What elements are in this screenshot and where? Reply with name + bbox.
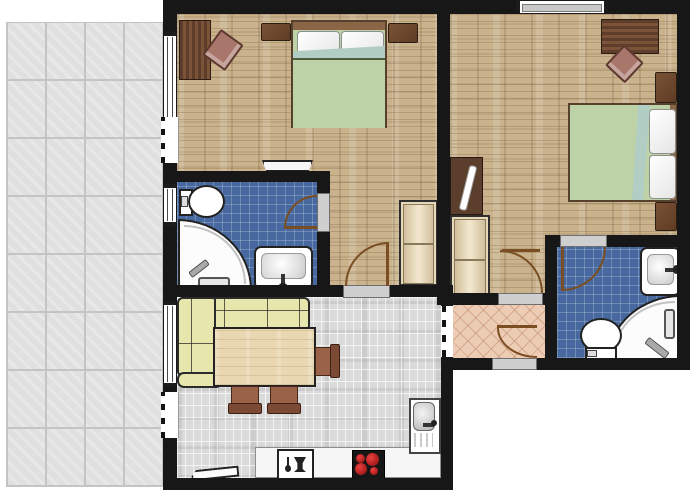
bathroom-1-door-sill [317,193,330,232]
bedroom-1-nightstand-left [261,23,291,41]
sofa-left-section [177,297,216,375]
wall-bathroom-2-left [545,235,557,370]
toilet-flush-button [587,350,597,357]
cooktop [352,450,385,479]
terrace-floor [6,22,163,487]
toilet-flush-button [181,196,188,207]
wall-bottom-right [441,358,690,370]
cooktop-burner-icon [370,467,378,475]
bed-folded-sheet [632,105,650,200]
bathroom-1-window [164,184,176,226]
bedroom-1-door-sill [343,285,390,298]
bathroom-1-sink [254,246,313,290]
bedroom-1-door-leaf [386,243,389,286]
dishwasher [277,449,314,481]
bathroom-2-sink [640,247,681,296]
bed-pillow [649,109,676,154]
bathroom-2-door-leaf [561,247,564,291]
bedroom-1-nightstand-right [388,23,418,43]
living-window [164,301,176,387]
wardrobe-door [403,204,434,244]
cooktop-burner-icon [355,463,367,475]
cooktop-burner-icon [356,454,365,463]
sink-drainboard [414,433,433,447]
bedroom-2-window [516,1,608,13]
bedroom-1-terrace-door [161,117,179,163]
bedroom-2-wardrobe [450,215,490,302]
entrance-door-leaf [497,325,537,328]
entrance-door-sill [492,358,537,370]
wardrobe-door [403,244,434,284]
bedroom-2-nightstand-top [655,72,677,103]
bed-duvet [293,58,385,128]
bedroom-2-desk [601,19,659,54]
bed-pillow [649,155,676,199]
wall-bathroom-1-top [177,171,330,182]
wall-living-top [163,285,453,297]
dishwasher-icon [285,465,291,472]
bedroom-1-bed [291,20,387,128]
bedroom-1-window [164,32,176,124]
living-terrace-door [161,392,179,438]
wall-bathroom-1-right [317,171,330,297]
bathroom-1-door-leaf [284,226,317,229]
bathroom-1-toilet [188,185,225,218]
kitchen-sink-unit [409,398,441,454]
bedroom-1-wardrobe [399,200,438,286]
wall-right [677,0,690,370]
cooktop-burner-icon [366,453,379,466]
faucet-knob [431,420,437,426]
dining-chair-2-back [267,403,301,414]
living-hall-passage [441,306,453,357]
bedroom-2-nightstand-bottom [655,202,677,231]
bed-headboard [293,22,385,30]
dishwasher-icon [294,457,306,472]
bathroom-2-door-sill [560,235,607,247]
bedroom-2-door-leaf [502,249,540,252]
bedroom-2-bed [568,103,678,202]
dining-table [213,327,316,387]
dining-chair-1-back [228,403,262,414]
wardrobe-door [454,219,486,260]
mirror-icon [459,165,478,212]
shower-handle-icon [664,309,675,339]
dining-chair-side-back [330,344,340,378]
bedroom-2-door-sill [498,293,543,305]
bedroom-2-mirror-board [450,157,483,215]
floor-plan [0,0,700,500]
wall-living-bottom [163,478,453,490]
wall-bedroom-divider [437,12,450,305]
wall-top [163,0,690,14]
